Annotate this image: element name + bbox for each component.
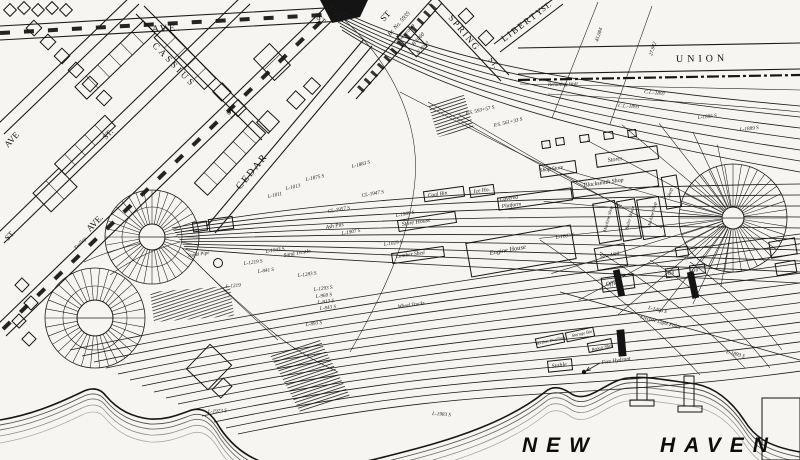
yard-building	[769, 238, 797, 258]
street-label: ST	[378, 8, 393, 23]
track-label: L-1885 S	[697, 113, 718, 121]
house	[26, 20, 42, 36]
house	[32, 4, 45, 17]
track-label: 27.942	[647, 41, 658, 57]
turntable-south-spoke	[97, 336, 100, 368]
turntable-south-spoke	[48, 300, 78, 312]
turntable-east-spoke	[744, 220, 786, 227]
rowhouse-divider	[109, 54, 121, 66]
track-label: C.L.-1897	[644, 89, 666, 98]
place-label: Fire Hydrant	[600, 356, 631, 366]
rowhouse-divider	[223, 152, 236, 164]
track-label: L-1973 S	[207, 408, 228, 415]
track-label: L-1983 S	[431, 411, 452, 418]
house	[82, 76, 98, 92]
stand-pipe	[214, 259, 223, 268]
place-label: Oil	[668, 271, 676, 277]
place-label: Oil	[692, 268, 700, 274]
rowhouse-divider	[243, 131, 256, 143]
house	[213, 83, 231, 101]
yard-building	[208, 216, 233, 231]
track-label: L-1949 S	[394, 209, 415, 219]
rowhouse-divider	[184, 58, 196, 69]
turntable-south-spoke	[46, 309, 77, 315]
turntable-east-spoke	[725, 165, 732, 207]
survey-line-a	[552, 2, 598, 118]
turntable-lead	[578, 224, 722, 301]
yard-building	[595, 146, 658, 168]
house	[304, 78, 321, 95]
track-label: L-1943 S	[264, 245, 285, 255]
street-label: CEDAR	[234, 151, 271, 192]
track-label: CL-1957 S	[327, 205, 350, 215]
house	[60, 4, 73, 17]
house	[46, 2, 59, 15]
place-label: Engine House	[488, 244, 526, 257]
place-label: Stores	[607, 156, 623, 164]
turntable-south-spoke	[81, 270, 90, 301]
turntable-east-spoke	[743, 201, 784, 214]
rowhouse-block	[254, 44, 291, 81]
rowhouse-divider	[214, 162, 227, 174]
turntable-south-spoke	[81, 335, 90, 366]
yard-building	[556, 137, 565, 145]
railroad-yard-map: AVE.AVEST.ST.CASSIUSSTCEDARSTSTSPRINGST.…	[0, 0, 800, 460]
turntable-south-spoke	[90, 268, 93, 300]
street-label: ST	[225, 106, 240, 121]
place-label: Ice Ho.	[472, 187, 490, 195]
turntable-south-spoke	[100, 270, 109, 301]
map-labels: AVE.AVEST.ST.CASSIUSSTCEDARSTSTSPRINGST.…	[2, 0, 759, 418]
rowhouse-divider	[98, 65, 110, 77]
connector-track	[690, 262, 782, 350]
turntable-west-spoke	[129, 248, 146, 277]
yard-building	[775, 260, 797, 275]
turntable-west-spoke	[159, 248, 176, 277]
track-label: L-1011	[266, 191, 283, 200]
turntable-east-spoke	[735, 165, 742, 207]
track-label: CL-1947 S	[361, 188, 385, 199]
track-label: L-1219 S	[242, 258, 263, 267]
turntable-west-spoke	[144, 191, 150, 224]
pier-b	[684, 376, 694, 406]
track-label: L-841 S	[256, 266, 274, 275]
rowhouse-divider	[204, 173, 217, 185]
rowhouse-outline	[55, 115, 116, 174]
place-label: Repair Shed	[590, 342, 614, 352]
street-label: AVE.	[152, 22, 182, 35]
connector-track	[340, 16, 416, 352]
house	[15, 278, 29, 292]
connector-track	[548, 94, 800, 112]
avenue-diagonal	[0, 0, 343, 336]
place-label: Stable	[551, 362, 567, 370]
turntable-west-spoke	[111, 214, 140, 231]
rowhouse-block	[194, 121, 265, 195]
street-label: UNION	[676, 53, 728, 65]
turntable-west-spoke	[165, 239, 198, 245]
main-line	[340, 26, 800, 161]
map-canvas: AVE.AVEST.ST.CASSIUSSTCEDARSTSTSPRINGST.…	[0, 0, 800, 460]
street-label: LIBERTY	[499, 5, 546, 44]
house	[96, 90, 112, 106]
track-label: L-1219	[225, 282, 242, 290]
turntable-east-spoke	[744, 210, 786, 217]
fire-hydrant-dot	[582, 370, 586, 374]
rowhouse-divider	[264, 54, 280, 69]
turntable-east-spoke	[682, 201, 723, 214]
street-p1	[0, 0, 139, 134]
track-label: P.S. 561+33 S	[492, 116, 523, 129]
turntable-east-spoke	[735, 229, 742, 271]
place-label: Wheel Trucks	[398, 301, 426, 310]
turntable-east-spoke	[725, 229, 732, 271]
street-p2	[0, 0, 250, 243]
pier-b-foot	[678, 406, 702, 412]
rowhouse-divider	[120, 43, 132, 55]
turntable-west-spoke	[106, 229, 139, 235]
turntable-east	[539, 123, 787, 314]
yard-track	[175, 206, 800, 233]
track-label: L-1893 S	[725, 349, 746, 360]
yard-building	[675, 246, 688, 257]
house	[287, 91, 305, 109]
yard-building	[580, 134, 590, 142]
place-label: Stand Pipe	[188, 251, 211, 259]
place-label: Lumber Shed	[394, 250, 425, 260]
storage-track	[142, 293, 800, 386]
place-label: Section Dwelling	[535, 335, 566, 346]
place-label: Shop Store	[539, 165, 564, 174]
place-label: Coal Bin	[427, 190, 448, 199]
turntable-west-spoke	[106, 239, 139, 245]
rowhouse-block	[33, 168, 77, 212]
rowhouse-divider	[46, 181, 64, 200]
turntable-east-spoke	[682, 221, 723, 234]
turntable-south-spoke	[112, 300, 142, 312]
track-label: 45.084	[593, 27, 604, 43]
rowhouse-divider	[132, 32, 144, 44]
house	[12, 314, 26, 328]
car-block-west	[150, 286, 234, 322]
turntable-south-spoke	[46, 321, 77, 327]
house	[22, 332, 36, 346]
place-label: Retaining Wall	[547, 82, 578, 88]
turntable-west-spoke	[154, 191, 160, 224]
yard-building	[542, 140, 551, 148]
track-label: L-1875 S	[304, 173, 325, 183]
turntable-west-spoke	[159, 196, 176, 225]
house	[4, 4, 17, 17]
rowhouse-divider	[233, 142, 246, 154]
turntable-south-spoke	[48, 325, 78, 337]
turntable-west	[105, 190, 199, 284]
turntable-west-spoke	[111, 244, 140, 261]
track-label: L-1013	[284, 183, 301, 192]
track-label: C.L.-1893	[618, 103, 640, 110]
street-label: CASSIUS	[151, 40, 198, 89]
track-label: L-893 S	[305, 320, 323, 328]
place-label: Electric Light Poles	[639, 314, 682, 331]
track-label: L-1283 S	[296, 270, 317, 279]
turntable-south-spoke	[90, 336, 93, 368]
turntable-south-spoke	[113, 309, 144, 315]
storage-track	[154, 303, 800, 392]
coal-tower-b	[687, 272, 698, 299]
track-label: L-1883 S	[350, 159, 371, 170]
turntable-east-spoke	[736, 167, 749, 208]
rowhouse-block	[55, 115, 116, 174]
turntable-south-spoke	[113, 321, 144, 327]
house	[18, 2, 31, 15]
street-label: SPRING	[446, 13, 482, 53]
house	[54, 48, 70, 64]
harbor-label-new: NEW	[522, 434, 598, 457]
street-label: ST.	[3, 228, 17, 242]
turntable-south-spoke	[112, 325, 142, 337]
union-street	[518, 43, 800, 74]
turntable-west-spoke	[129, 196, 146, 225]
turntable-south-spoke	[97, 268, 100, 300]
harbor-label-haven: HAVEN	[660, 434, 777, 457]
track-label: L-1083 S	[554, 232, 575, 241]
turntable-west-spoke	[154, 250, 160, 283]
place-label: Machine Shop	[602, 205, 614, 233]
track-label: P.S. 593+57 S	[464, 104, 495, 117]
track-label: L-1889 S	[739, 125, 760, 133]
rowhouse-divider	[164, 37, 176, 48]
